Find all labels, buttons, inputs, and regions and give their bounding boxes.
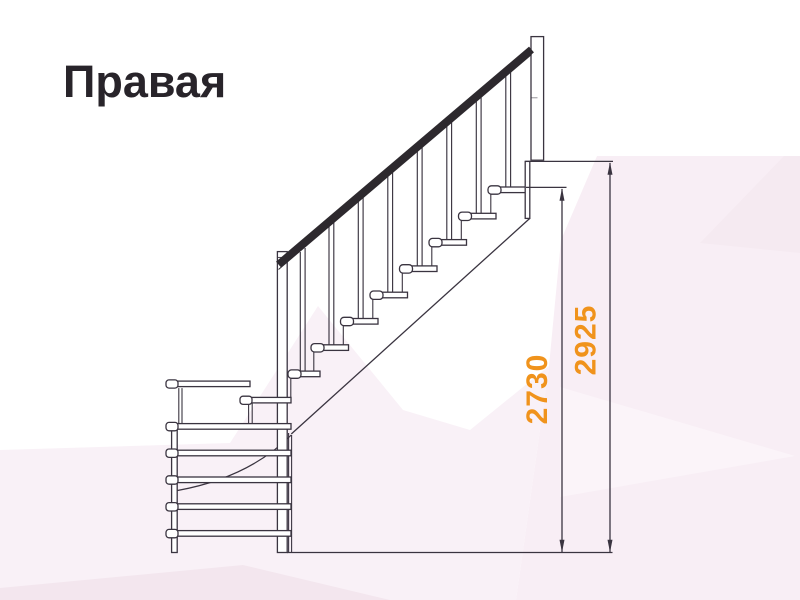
staircase-diagram-page: 2730 2925 Правая [0, 0, 800, 600]
winder-board-cap [166, 380, 178, 388]
tread-nosing [370, 291, 383, 299]
tread-nosing [311, 344, 324, 352]
winder-board-cap [240, 396, 252, 404]
winder-board [172, 531, 291, 537]
winder-board [172, 381, 250, 387]
dimension-label-2730: 2730 [521, 354, 554, 425]
diagram-canvas: 2730 2925 Правая [0, 0, 800, 600]
winder-board [172, 424, 291, 430]
winder-board [172, 450, 291, 456]
winder-board-cap [166, 476, 178, 484]
dimension-label-2925: 2925 [570, 305, 603, 376]
winder-board-cap [166, 449, 178, 457]
winder-board [246, 397, 291, 403]
winder-board [172, 504, 291, 510]
winder-board-cap [166, 422, 178, 430]
winder-board-cap [166, 503, 178, 511]
tread-nosing [429, 238, 442, 246]
tread-nosing [488, 186, 501, 194]
top-newel-post [531, 37, 544, 161]
tread-nosing [459, 212, 472, 220]
tread-nosing [400, 265, 413, 273]
landing-fascia [525, 161, 530, 218]
tread-nosing [288, 370, 301, 378]
winder-board [172, 477, 291, 483]
winder-board-cap [166, 529, 178, 537]
page-title: Правая [63, 56, 226, 107]
tread-nosing [341, 317, 354, 325]
